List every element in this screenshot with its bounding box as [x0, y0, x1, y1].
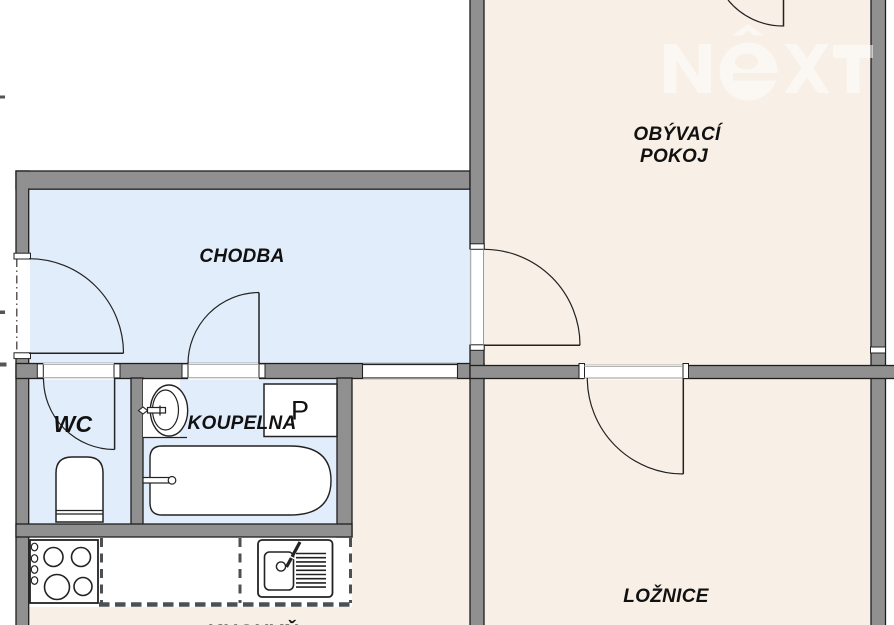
svg-text:WC: WC	[54, 411, 93, 437]
svg-text:POKOJ: POKOJ	[640, 146, 708, 167]
svg-text:CHODBA: CHODBA	[199, 246, 284, 267]
svg-text:KOUPELNA: KOUPELNA	[187, 413, 296, 434]
svg-text:LOŽNICE: LOŽNICE	[623, 585, 710, 607]
svg-text:KUCHYŇ: KUCHYŇ	[206, 620, 298, 625]
svg-text:OBÝVACÍ: OBÝVACÍ	[633, 123, 724, 145]
